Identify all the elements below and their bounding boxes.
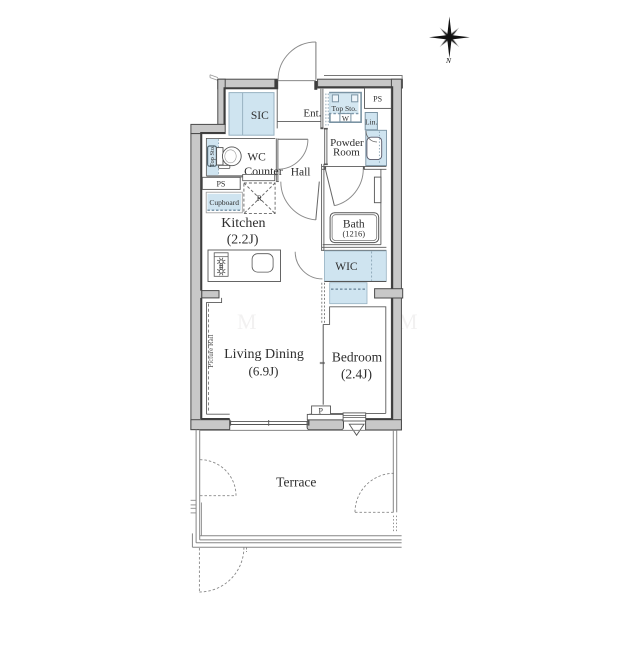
svg-text:Top Sto.: Top Sto.	[332, 104, 357, 113]
svg-text:Terrace: Terrace	[276, 475, 316, 490]
svg-text:W: W	[342, 114, 350, 123]
svg-text:Hall: Hall	[291, 166, 311, 178]
svg-text:(2.2J): (2.2J)	[227, 231, 259, 247]
svg-text:Lin.: Lin.	[365, 118, 377, 127]
svg-text:Room: Room	[333, 146, 360, 158]
svg-text:P: P	[318, 406, 323, 415]
svg-text:R: R	[257, 193, 263, 203]
svg-text:(6.9J): (6.9J)	[249, 364, 279, 379]
svg-text:Bedroom: Bedroom	[332, 350, 383, 365]
svg-text:Top Sto.: Top Sto.	[209, 145, 216, 167]
svg-text:PS: PS	[373, 95, 382, 104]
svg-text:WC: WC	[247, 152, 266, 164]
svg-text:(2.4J): (2.4J)	[341, 366, 372, 381]
svg-text:Cupboard: Cupboard	[209, 198, 239, 207]
svg-text:(1216): (1216)	[342, 229, 365, 239]
svg-text:Ent.: Ent.	[303, 107, 321, 119]
svg-text:PS: PS	[216, 180, 225, 189]
svg-text:Living Dining: Living Dining	[224, 347, 304, 362]
svg-text:Kitchen: Kitchen	[221, 216, 265, 231]
svg-text:N: N	[445, 56, 452, 65]
svg-text:SIC: SIC	[251, 110, 269, 122]
svg-text:Picture Rail: Picture Rail	[207, 334, 215, 367]
svg-text:M: M	[237, 309, 257, 334]
svg-text:WIC: WIC	[335, 261, 358, 273]
